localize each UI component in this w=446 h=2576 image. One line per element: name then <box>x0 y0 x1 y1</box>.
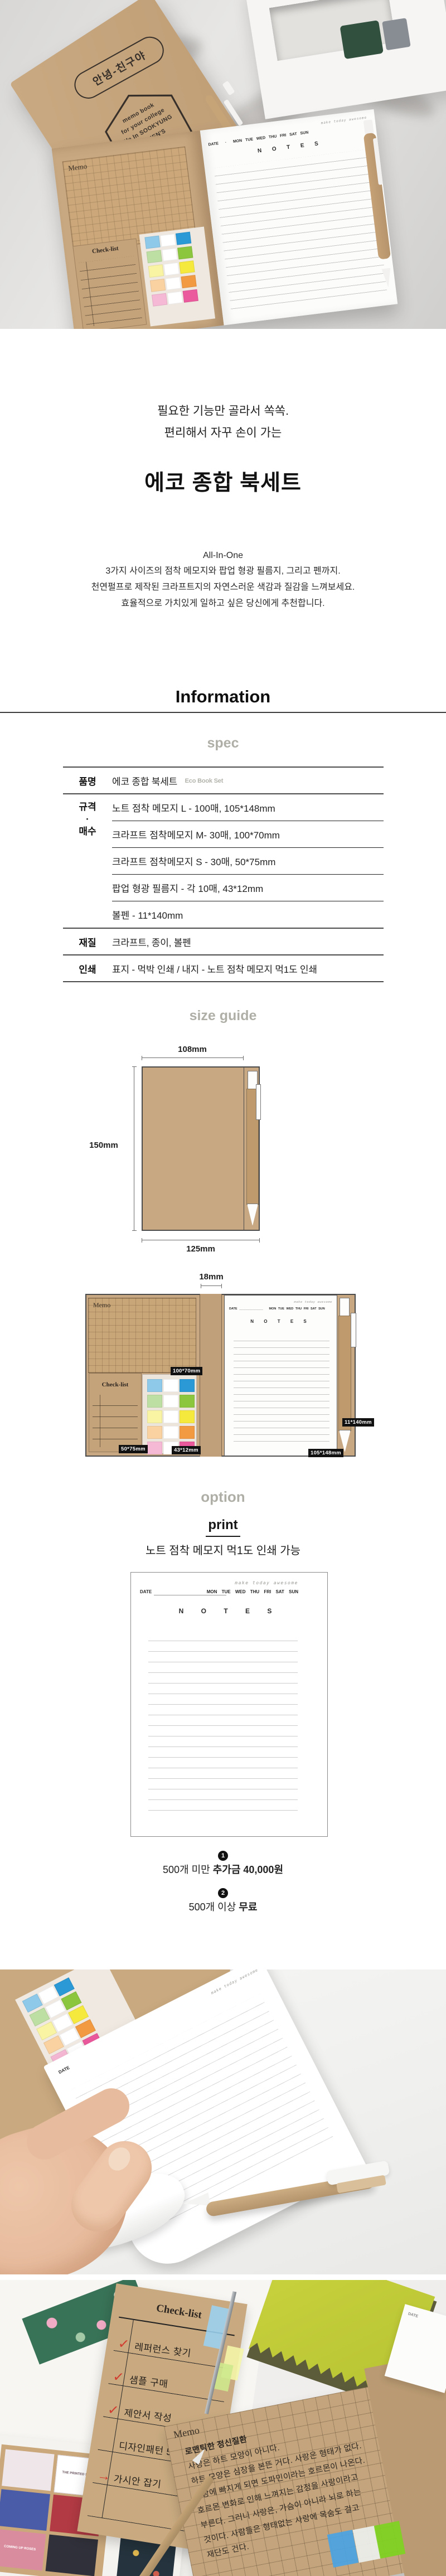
tape-roll <box>382 18 411 50</box>
flag-cell <box>163 1410 178 1423</box>
notes-pad-diagram: make today awesome DATE ______________ M… <box>224 1295 337 1456</box>
book-cover <box>46 2535 98 2576</box>
section-divider <box>0 712 446 713</box>
flag-cell <box>144 236 160 249</box>
date-label: DATE <box>229 1307 237 1311</box>
badge-number: 1 <box>218 1851 228 1861</box>
hero-photo: 안녕-친구야 memo book for your college life I… <box>0 0 446 329</box>
notes-motto: make today awesome <box>294 1301 332 1304</box>
book-spine <box>200 1294 222 1457</box>
size-guide-heading: size guide <box>0 1007 446 1024</box>
notes-motto: make today awesome <box>235 1580 298 1585</box>
product-name-en: Eco Book Set <box>185 778 224 784</box>
pen-plunger <box>222 81 235 96</box>
pen-tip <box>247 1204 258 1226</box>
intro-desc-1: 3가지 사이즈의 점착 메모지와 팝업 형광 필름지, 그리고 펜까지. <box>0 565 446 578</box>
pen-clip <box>256 1084 261 1120</box>
notes-pad: make today awesome DATE · MON TUE WED TH… <box>200 109 397 326</box>
film-flags-diagram <box>142 1374 197 1454</box>
item-text: 제안서 작성 <box>123 2404 172 2424</box>
note-text: 500개 미만 <box>163 1864 213 1875</box>
spec-row-name: 품명 에코 종합 북세트 Eco Book Set <box>63 768 384 794</box>
flag-cell <box>181 275 196 289</box>
flag-cell <box>163 1395 178 1408</box>
notes-ruled-lines <box>234 1335 329 1444</box>
checklist-pad-diagram: Check-list <box>89 1373 142 1452</box>
checklist-pad: Check-list <box>72 238 147 329</box>
spec-subrow: 크라프트 점착메모지 M- 30매, 100*70mm <box>112 821 384 847</box>
detail-photo-flatlay: THE PRINTED SQUARE COMING UP ROSES Check… <box>0 2280 446 2576</box>
note-bold-text: 무료 <box>239 1901 257 1913</box>
notes-title: N O T E S <box>131 1607 327 1615</box>
flag-cell <box>147 1442 162 1454</box>
spec-subrow: 볼펜 - 11*140mm <box>112 901 384 928</box>
spec-value: 크라프트, 종이, 볼펜 <box>112 935 384 949</box>
flag-cell <box>179 261 195 274</box>
intro-tagline-1: 필요한 기능만 골라서 쏙쏙. <box>0 403 446 420</box>
check-mark <box>103 2442 119 2444</box>
product-name: 에코 종합 북세트 <box>112 777 177 787</box>
left-inner-cover: Memo Check-list <box>52 130 224 329</box>
date-underline <box>154 1595 226 1595</box>
flag-cell <box>177 246 193 260</box>
flag-cell <box>147 1410 162 1423</box>
badge-number: 2 <box>218 1888 228 1898</box>
pen-plunger <box>363 119 374 135</box>
flag-cell <box>167 292 182 305</box>
pen-barrel <box>338 1316 351 1431</box>
flag-row <box>147 1395 196 1408</box>
flag-cell <box>160 234 176 248</box>
checklist-ruled-lines <box>93 1395 138 1447</box>
flag-cell <box>149 279 165 292</box>
detail-photo-flipping-pad: make today awesome DATE <box>0 1969 446 2274</box>
flag-cell <box>180 1410 195 1423</box>
memo-grid-pad-diagram: Memo <box>88 1298 196 1373</box>
dim-width-line <box>142 1057 244 1058</box>
option-heading: option <box>0 1488 446 1505</box>
check-mark: ✓ <box>117 2335 135 2353</box>
flag-cell <box>163 263 179 276</box>
item-text: 가시안 잡기 <box>113 2471 162 2490</box>
label-line: · <box>63 813 112 826</box>
flag-row <box>147 1410 196 1423</box>
flag-cell <box>148 265 163 278</box>
memo-pad-title: Memo <box>93 1301 110 1309</box>
check-mark: → <box>96 2468 115 2485</box>
size-chip-flags: 43*12mm <box>172 1446 201 1454</box>
cover-title: COMING UP ROSES <box>0 2544 45 2553</box>
flag-cell <box>180 1426 195 1439</box>
spec-table: 품명 에코 종합 북세트 Eco Book Set 규격 · 매수 노트 점착 … <box>63 767 384 982</box>
spec-heading: spec <box>0 735 446 751</box>
item-text: 샘플 구매 <box>129 2371 169 2390</box>
pen-clip <box>351 1313 356 1347</box>
option-note-2-badge: 2 <box>0 1888 446 1898</box>
flag-cell <box>146 250 162 264</box>
dim-height-label: 150mm <box>78 1141 129 1150</box>
book-cover <box>0 2489 50 2531</box>
spec-subrow: 노트 점착 메모지 L - 100매, 105*148mm <box>112 794 384 821</box>
date-label: DATE <box>140 1589 152 1594</box>
checklist-ruled-lines <box>79 256 142 327</box>
flag-cell <box>176 232 191 245</box>
spec-subrows: 노트 점착 메모지 L - 100매, 105*148mm 크라프트 점착메모지… <box>112 794 384 928</box>
spec-label: 품명 <box>63 774 112 788</box>
flag-cell <box>163 1426 178 1439</box>
flag-cell <box>147 1426 162 1439</box>
pen-plunger <box>340 1298 350 1317</box>
memo-pad-title: Memo <box>67 162 88 173</box>
weekdays-label: MON TUE WED THU FRI SAT SUN <box>269 1307 325 1311</box>
notes-ruled-lines <box>214 149 387 312</box>
book-cover-coming-up-roses: COMING UP ROSES <box>0 2529 46 2571</box>
flag-row <box>147 1426 196 1439</box>
dim-spine-label: 18mm <box>156 1272 267 1282</box>
flag-cell <box>163 1379 178 1392</box>
print-subheading: print <box>0 1517 446 1537</box>
flag-cell <box>152 293 167 307</box>
label-line: 규격 <box>63 801 112 813</box>
spec-row-print: 인쇄 표지 - 먹박 인쇄 / 내지 - 노트 점착 메모지 먹1도 인쇄 <box>63 955 384 982</box>
memo-pad-title: Memo <box>172 2424 200 2441</box>
intro-subtitle: All-In-One <box>0 550 446 562</box>
flag-cell <box>147 1395 162 1408</box>
film-flags-block <box>139 227 215 327</box>
check-mark: ✓ <box>106 2402 125 2419</box>
weekdays-label: MON TUE WED THU FRI SAT SUN <box>233 130 309 144</box>
book-cover <box>2 2449 54 2491</box>
weekdays-label: MON TUE WED THU FRI SAT SUN <box>207 1589 298 1594</box>
flag-cell <box>182 289 198 303</box>
flag-cell <box>162 248 177 261</box>
dim-spine-line <box>201 1285 222 1286</box>
notes-title: N O T E S <box>225 1319 337 1324</box>
checklist-pad-title: Check-list <box>89 1381 141 1388</box>
flag-cell <box>165 277 181 290</box>
notes-ruled-lines <box>148 1631 298 1813</box>
print-label: print <box>206 1517 240 1537</box>
flag-cell <box>180 1395 195 1408</box>
spec-row-size-qty: 규격 · 매수 노트 점착 메모지 L - 100매, 105*148mm 크라… <box>63 794 384 929</box>
product-detail-page: 안녕-친구야 memo book for your college life I… <box>0 0 446 2576</box>
spec-value: 에코 종합 북세트 Eco Book Set <box>112 774 384 788</box>
option-note-2: 500개 이상 무료 <box>0 1900 446 1914</box>
spec-label: 인쇄 <box>63 962 112 976</box>
cover-spine-divider <box>244 1068 244 1230</box>
note-text: 500개 이상 <box>189 1901 239 1913</box>
date-label: DATE <box>58 2065 71 2075</box>
print-caption: 노트 점착 메모지 먹1도 인쇄 가능 <box>0 1544 446 1559</box>
box-opening <box>269 0 396 61</box>
label-line: 매수 <box>63 826 112 838</box>
spec-label: 재질 <box>63 935 112 949</box>
pen-tip <box>381 268 392 288</box>
size-chip-pen: 11*140mm <box>342 1418 374 1427</box>
intro-desc-3: 효율적으로 가치있게 일하고 싶은 당신에게 추천합니다. <box>0 598 446 610</box>
spec-subrow: 크라프트 점착메모지 S - 30매, 50*75mm <box>112 847 384 874</box>
note-bold-text: 추가금 40,000원 <box>213 1864 283 1875</box>
dim-total-width-label: 125mm <box>145 1244 256 1254</box>
checklist-pad-title: Check-list <box>74 242 137 257</box>
size-chip-memo: 100*70mm <box>171 1367 202 1375</box>
dim-total-width-line <box>142 1240 260 1240</box>
spec-value: 표지 - 먹박 인쇄 / 내지 - 노트 점착 메모지 먹1도 인쇄 <box>112 962 384 976</box>
dim-height-line <box>134 1066 134 1231</box>
information-heading: Information <box>0 686 446 708</box>
check-mark: ✓ <box>112 2368 130 2386</box>
intro-tagline-2: 편리해서 자꾸 손이 가는 <box>0 425 446 442</box>
washi-tape-roll <box>340 20 384 59</box>
spec-label: 규격 · 매수 <box>63 794 112 838</box>
flag-cell <box>147 1379 162 1392</box>
notes-date-row: DATE ______________ MON TUE WED THU FRI … <box>229 1307 325 1311</box>
product-title: 에코 종합 북세트 <box>0 468 446 498</box>
spec-row-material: 재질 크라프트, 종이, 볼펜 <box>63 929 384 955</box>
dim-width-label: 108mm <box>137 1045 248 1054</box>
print-sample-notepad: make today awesome DATE MON TUE WED THU … <box>130 1572 328 1837</box>
flag-cell <box>180 1379 195 1392</box>
date-label: DATE <box>408 2312 419 2318</box>
size-chip-checklist: 50*75mm <box>119 1445 148 1453</box>
item-text: 레퍼런스 찾기 <box>134 2339 192 2359</box>
date-label: DATE <box>208 142 219 147</box>
spec-subrow: 팝업 형광 필름지 - 각 10매, 43*12mm <box>112 874 384 901</box>
option-note-1-badge: 1 <box>0 1850 446 1861</box>
option-note-1: 500개 미만 추가금 40,000원 <box>0 1863 446 1876</box>
closed-book-diagram <box>142 1066 260 1231</box>
open-notebook-set: Memo Check-list make today awesome DATE … <box>52 109 398 329</box>
size-chip-notes: 105*148mm <box>308 1449 343 1457</box>
notes-motto: make today awesome <box>321 115 367 125</box>
flag-row <box>147 1379 196 1392</box>
intro-desc-2: 천연펄프로 제작된 크라프트지의 자연스러운 색감과 질감을 느껴보세요. <box>0 581 446 594</box>
